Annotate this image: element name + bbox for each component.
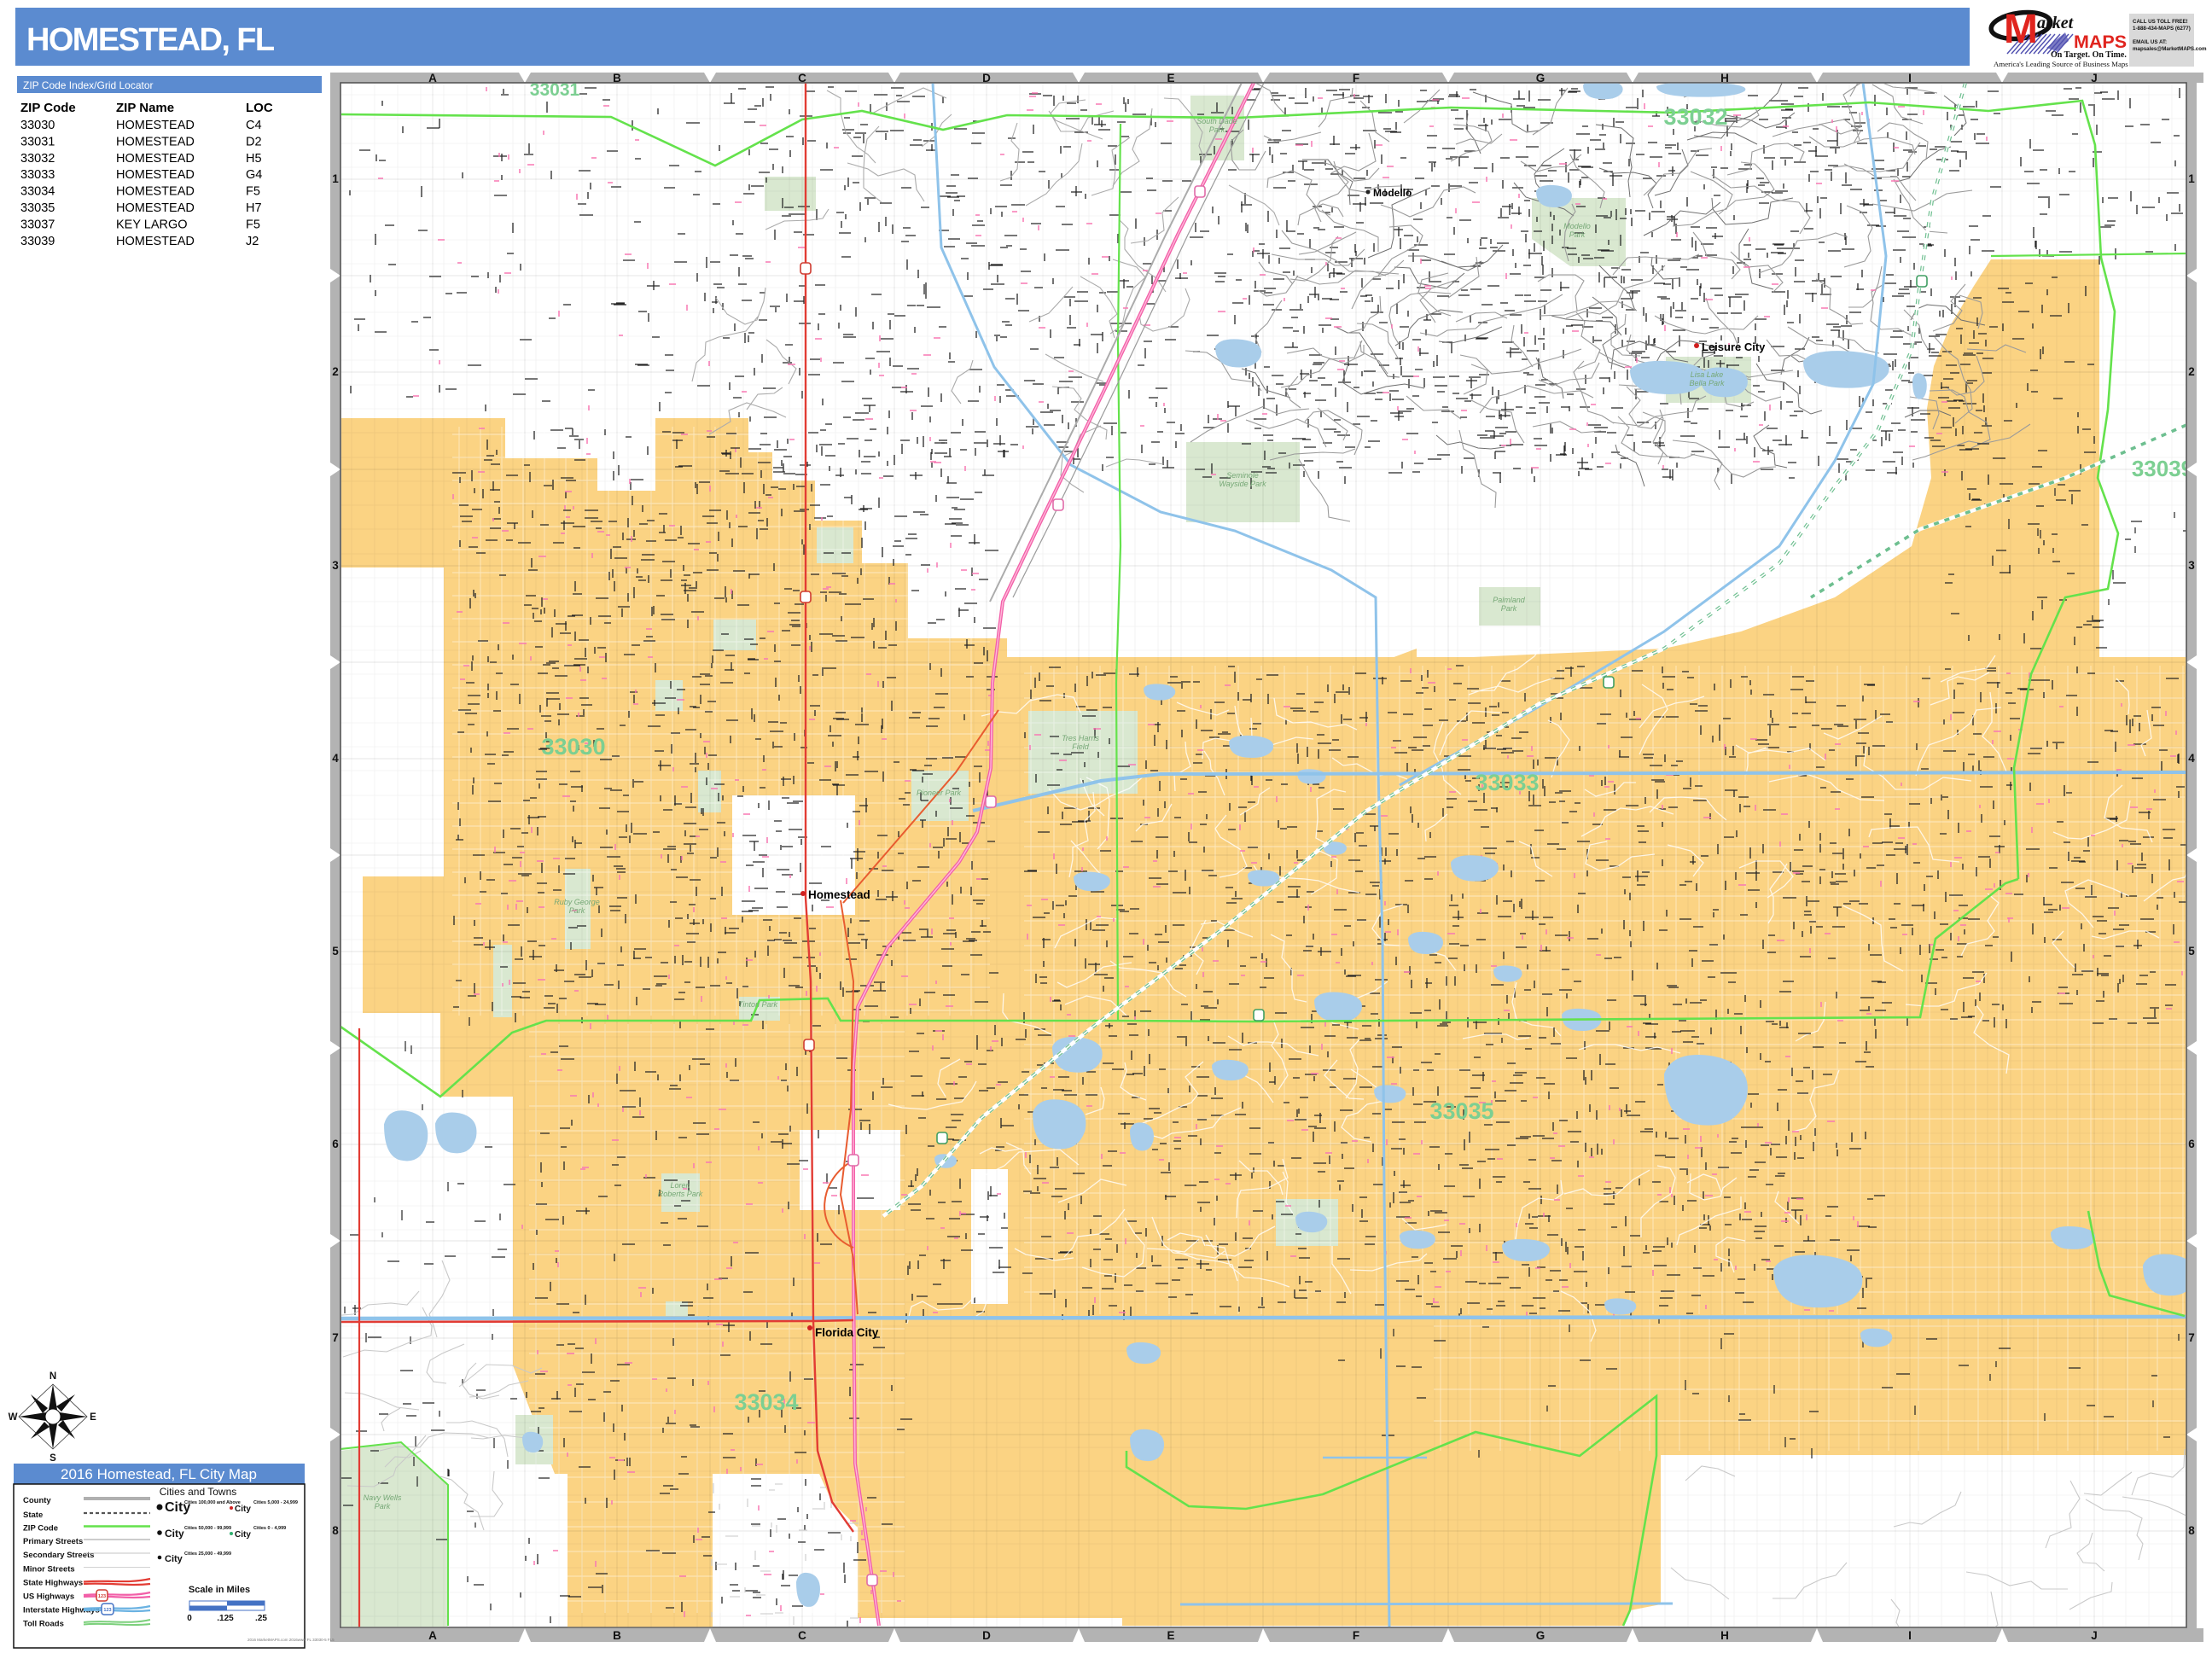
svg-text:33032: 33032 [1663, 104, 1727, 130]
svg-text:CALL US TOLL FREE!: CALL US TOLL FREE! [2133, 19, 2188, 25]
svg-text:C4: C4 [246, 119, 262, 132]
svg-text:ZIP Code: ZIP Code [20, 101, 76, 115]
svg-text:W: W [9, 1412, 18, 1423]
svg-text:City: City [165, 1528, 184, 1540]
svg-text:Cities 50,000 - 99,999: Cities 50,000 - 99,999 [184, 1526, 231, 1531]
svg-text:ZIP Name: ZIP Name [116, 101, 174, 115]
svg-text:Park: Park [1501, 604, 1517, 613]
svg-text:Seminole: Seminole [1226, 471, 1259, 480]
svg-text:33035: 33035 [20, 201, 55, 215]
svg-text:HOMESTEAD: HOMESTEAD [116, 135, 195, 148]
svg-text:Loren: Loren [670, 1181, 690, 1190]
svg-text:HOMESTEAD: HOMESTEAD [116, 201, 195, 215]
svg-text:E: E [90, 1412, 96, 1423]
svg-text:D2: D2 [246, 135, 262, 148]
svg-text:33030: 33030 [20, 119, 55, 132]
svg-text:.125: .125 [217, 1614, 234, 1623]
svg-text:mapsales@MarketMAPS.com: mapsales@MarketMAPS.com [2133, 46, 2207, 52]
svg-text:Field: Field [1072, 742, 1090, 751]
svg-text:F5: F5 [246, 185, 260, 199]
svg-text:Leisure City: Leisure City [1702, 341, 1766, 353]
svg-text:33033: 33033 [1475, 770, 1539, 795]
svg-text:J2: J2 [246, 235, 259, 248]
svg-text:Florida City: Florida City [815, 1326, 879, 1339]
svg-text:ZIP Code: ZIP Code [23, 1524, 58, 1534]
svg-text:Primary Streets: Primary Streets [23, 1537, 83, 1546]
svg-text:Park: Park [1209, 125, 1225, 134]
svg-text:3: 3 [2188, 559, 2195, 572]
svg-text:F5: F5 [246, 218, 260, 231]
svg-text:0: 0 [187, 1614, 192, 1623]
svg-text:HOMESTEAD: HOMESTEAD [116, 119, 195, 132]
svg-text:Cities 25,000 - 49,999: Cities 25,000 - 49,999 [184, 1551, 231, 1557]
svg-text:KEY LARGO: KEY LARGO [116, 218, 188, 231]
svg-text:M: M [2004, 7, 2038, 52]
svg-text:HOMESTEAD, FL: HOMESTEAD, FL [26, 22, 275, 58]
svg-text:Modello: Modello [1563, 222, 1591, 230]
svg-text:Scale in Miles: Scale in Miles [189, 1585, 250, 1595]
svg-text:HOMESTEAD: HOMESTEAD [116, 152, 195, 166]
svg-text:J: J [2091, 1629, 2098, 1642]
svg-text:6: 6 [2188, 1138, 2195, 1150]
svg-text:8: 8 [2188, 1524, 2195, 1537]
svg-text:5: 5 [332, 945, 339, 958]
svg-text:2: 2 [2188, 365, 2195, 378]
svg-text:123: 123 [98, 1594, 106, 1599]
svg-text:LOC: LOC [246, 101, 273, 115]
svg-text:.25: .25 [255, 1614, 267, 1623]
svg-text:G4: G4 [246, 168, 262, 182]
svg-text:F: F [1353, 1629, 1359, 1642]
svg-text:Wayside Park: Wayside Park [1219, 480, 1266, 488]
svg-text:E: E [1167, 1629, 1174, 1642]
svg-text:8: 8 [332, 1524, 339, 1537]
svg-text:Park: Park [375, 1502, 391, 1511]
svg-text:City: City [235, 1505, 251, 1514]
svg-text:2016 Homestead, FL City Map: 2016 Homestead, FL City Map [61, 1466, 257, 1482]
svg-text:Toll Roads: Toll Roads [23, 1620, 64, 1629]
svg-text:S: S [49, 1453, 56, 1464]
svg-text:33037: 33037 [20, 218, 55, 231]
svg-text:123: 123 [103, 1608, 111, 1613]
svg-text:1: 1 [2188, 172, 2195, 185]
svg-text:H: H [1720, 1629, 1729, 1642]
svg-text:Pioneer Park: Pioneer Park [917, 789, 962, 797]
svg-text:HOMESTEAD: HOMESTEAD [116, 168, 195, 182]
svg-text:N: N [49, 1371, 56, 1382]
svg-text:4: 4 [2188, 752, 2195, 765]
svg-text:Minor Streets: Minor Streets [23, 1565, 75, 1575]
svg-text:H7: H7 [246, 201, 262, 215]
svg-text:MAPS: MAPS [2074, 32, 2127, 52]
svg-text:HOMESTEAD: HOMESTEAD [116, 235, 195, 248]
svg-text:33034: 33034 [734, 1389, 798, 1415]
svg-text:6: 6 [332, 1138, 339, 1150]
svg-text:Secondary Streets: Secondary Streets [23, 1551, 94, 1560]
svg-text:Modello: Modello [1373, 187, 1412, 199]
svg-text:Cities 100,000 and Above: Cities 100,000 and Above [184, 1500, 241, 1505]
svg-text:33033: 33033 [20, 168, 55, 182]
svg-text:4: 4 [332, 752, 339, 765]
svg-text:State: State [23, 1511, 43, 1520]
svg-text:C: C [798, 1629, 806, 1642]
svg-text:33039: 33039 [2132, 456, 2193, 481]
svg-text:5: 5 [2188, 945, 2195, 958]
svg-text:City: City [235, 1530, 251, 1540]
svg-text:Park: Park [569, 906, 585, 915]
svg-text:G: G [1536, 1629, 1545, 1642]
svg-text:33030: 33030 [541, 734, 605, 760]
svg-text:US Highways: US Highways [23, 1592, 74, 1602]
svg-text:1: 1 [332, 172, 339, 185]
svg-text:Tres Harris: Tres Harris [1062, 734, 1099, 742]
svg-text:33034: 33034 [20, 185, 55, 199]
svg-text:Palmland: Palmland [1493, 596, 1526, 604]
svg-text:Cities 5,000 - 24,999: Cities 5,000 - 24,999 [253, 1500, 298, 1505]
svg-text:2: 2 [332, 365, 339, 378]
svg-text:D: D [982, 1629, 991, 1642]
svg-text:America's Leading Source of Bu: America's Leading Source of Business Map… [1994, 60, 2128, 68]
svg-text:County: County [23, 1496, 51, 1505]
svg-text:State Highways: State Highways [23, 1579, 83, 1588]
svg-text:Navy Wells: Navy Wells [364, 1493, 402, 1502]
svg-text:7: 7 [332, 1331, 339, 1344]
svg-text:South Dade: South Dade [1196, 117, 1237, 125]
svg-text:1-888-434-MAPS (6277): 1-888-434-MAPS (6277) [2133, 26, 2191, 32]
svg-text:ZIP Code Index/Grid Locator: ZIP Code Index/Grid Locator [23, 79, 154, 91]
svg-text:A: A [428, 1629, 437, 1642]
svg-text:3: 3 [332, 559, 339, 572]
svg-text:33039: 33039 [20, 235, 55, 248]
svg-text:33031: 33031 [20, 135, 55, 148]
svg-text:arket: arket [2037, 14, 2075, 32]
svg-text:33032: 33032 [20, 152, 55, 166]
svg-text:7: 7 [2188, 1331, 2195, 1344]
svg-text:H5: H5 [246, 152, 262, 166]
svg-text:Cities and Towns: Cities and Towns [160, 1486, 237, 1498]
svg-text:EMAIL US AT:: EMAIL US AT: [2133, 39, 2167, 45]
svg-text:Tinton Park: Tinton Park [738, 1000, 777, 1009]
svg-text:Park: Park [1569, 230, 1586, 239]
svg-text:33035: 33035 [1429, 1098, 1493, 1124]
svg-text:On Target. On Time.: On Target. On Time. [2051, 50, 2127, 60]
svg-text:B: B [613, 1629, 621, 1642]
svg-text:I: I [1908, 1629, 1912, 1642]
svg-text:Roberts Park: Roberts Park [658, 1190, 703, 1198]
svg-text:Homestead: Homestead [808, 888, 870, 901]
svg-text:HOMESTEAD: HOMESTEAD [116, 185, 195, 199]
svg-text:Bella Park: Bella Park [1689, 379, 1725, 387]
svg-text:2016 MarketMAPS.com 2016www FL: 2016 MarketMAPS.com 2016www FL 33030-5 F… [247, 1638, 335, 1642]
svg-text:Cities 0 - 4,999: Cities 0 - 4,999 [253, 1526, 286, 1531]
svg-text:Lisa Lake: Lisa Lake [1691, 370, 1724, 379]
svg-text:Ruby George: Ruby George [554, 898, 600, 906]
svg-text:City: City [165, 1554, 183, 1564]
